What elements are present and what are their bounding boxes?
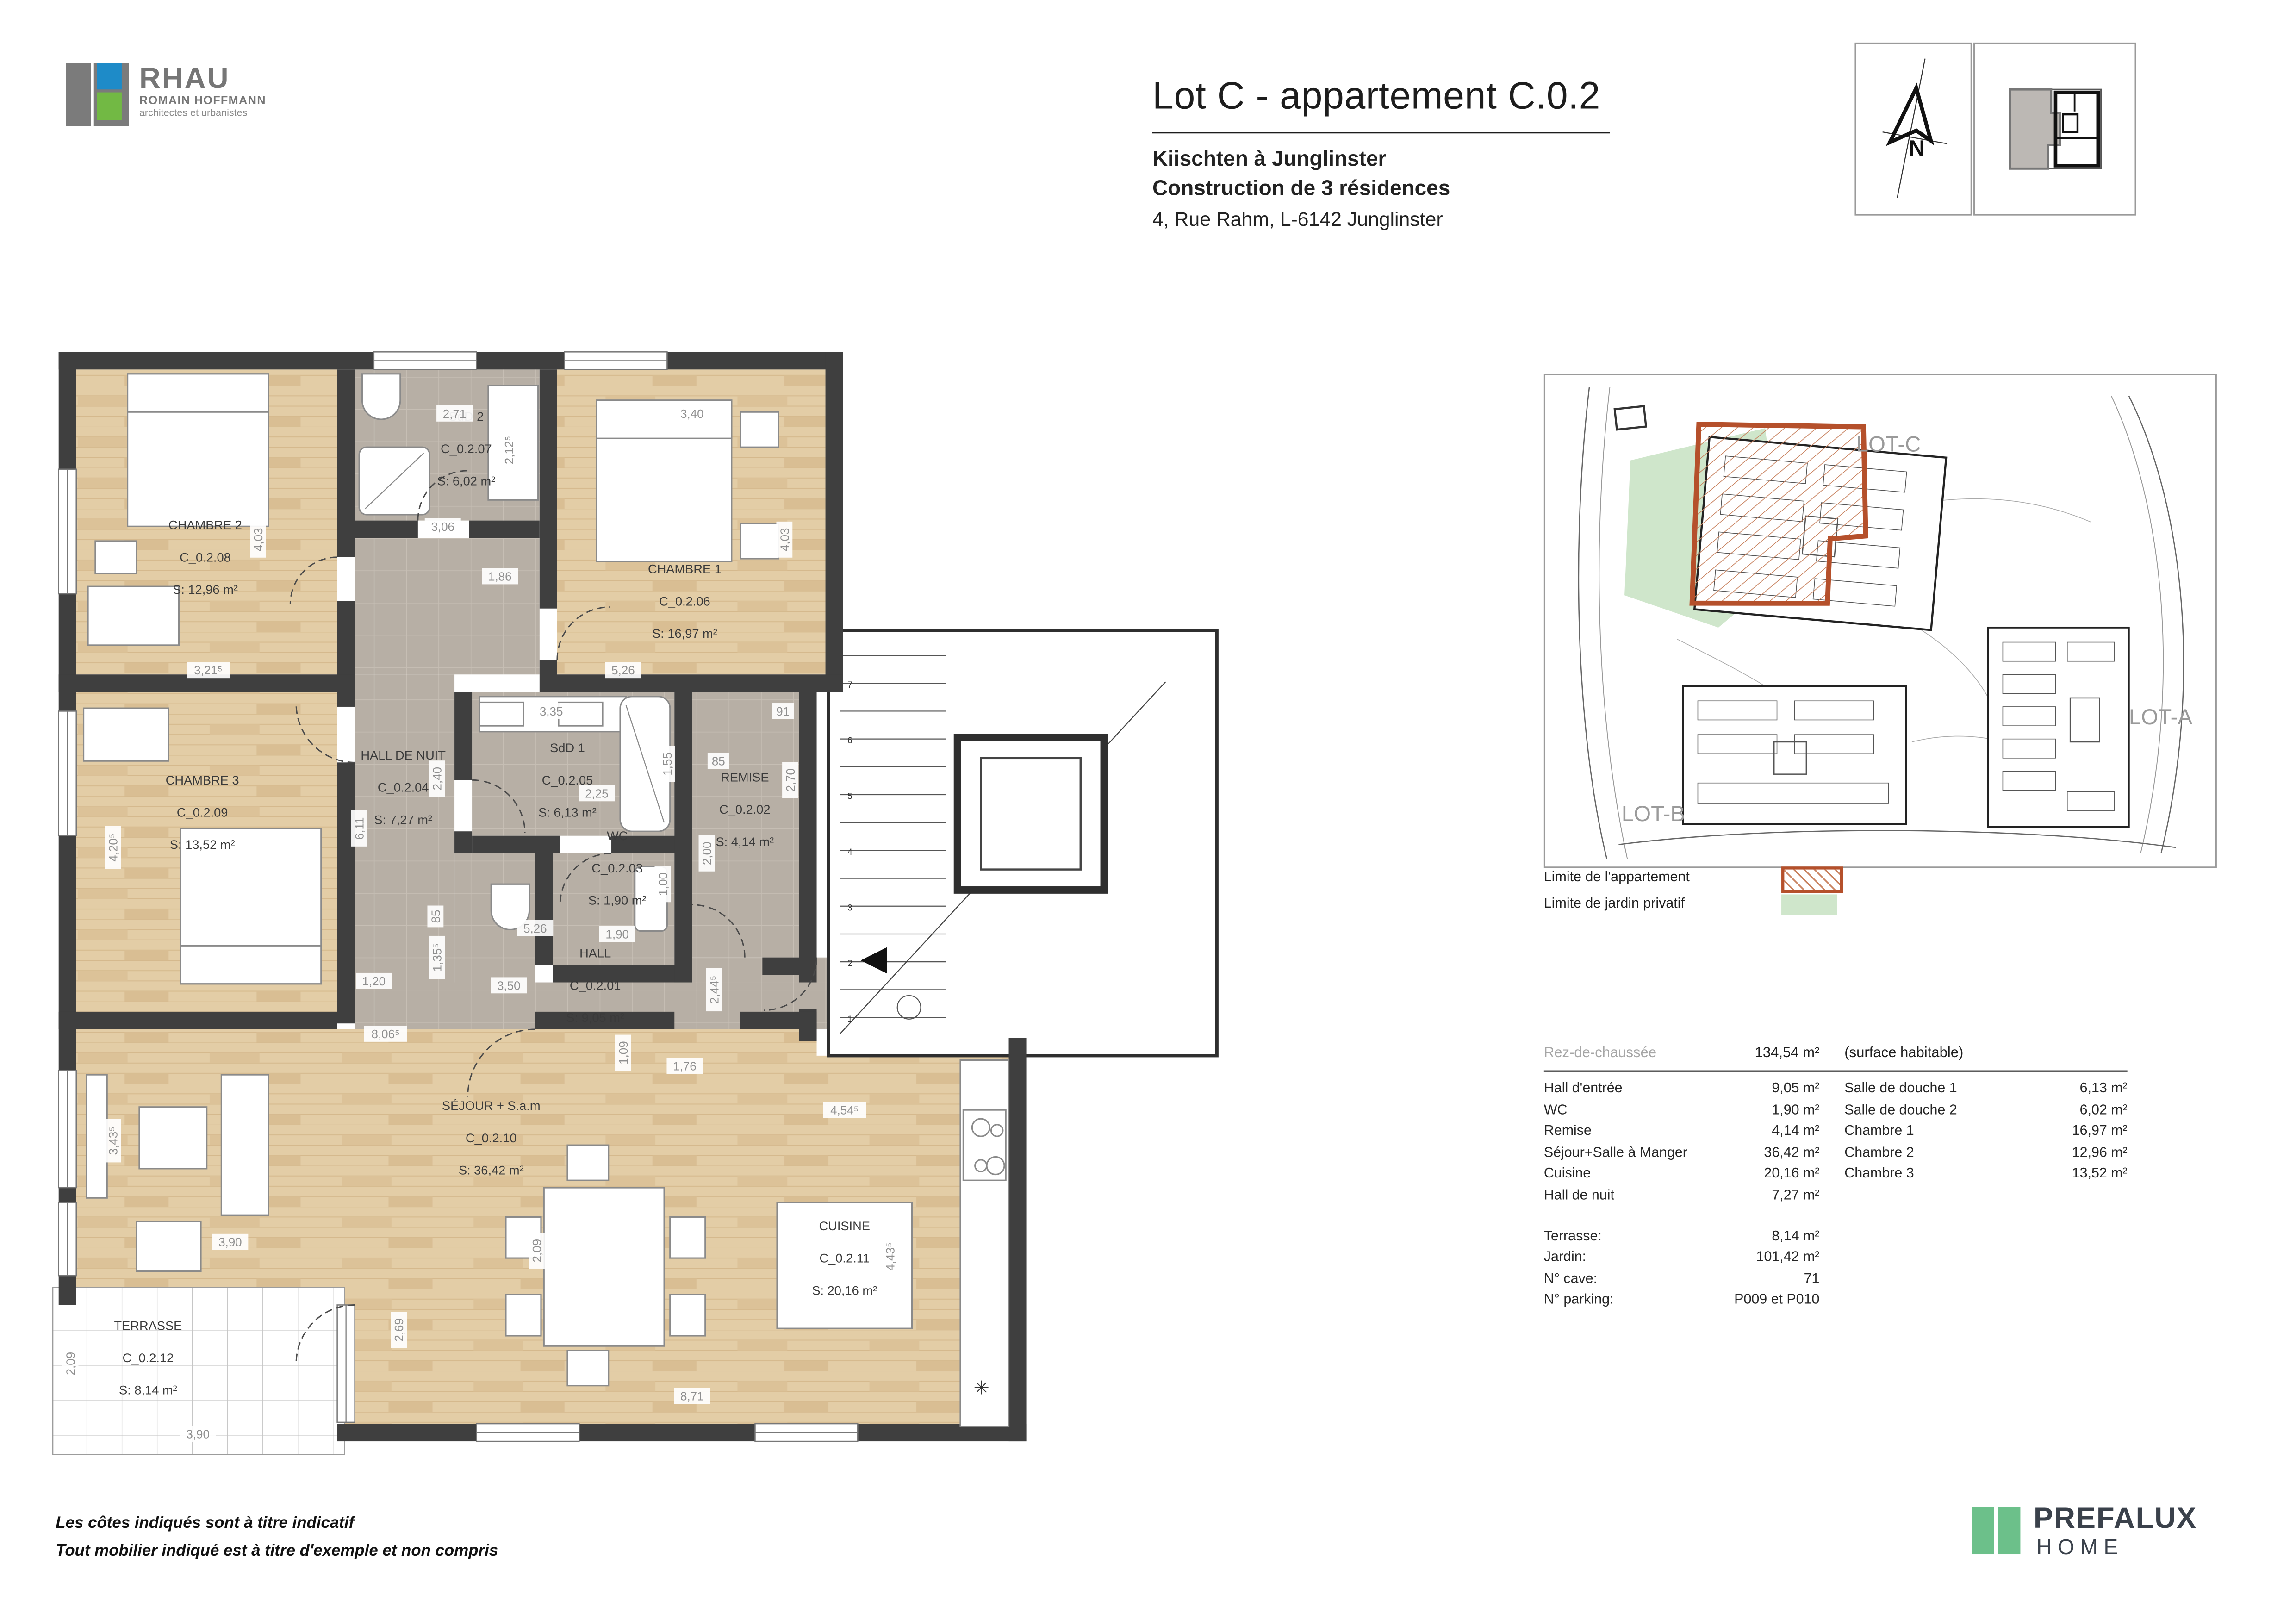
table-row: Salle de douche 16,13 m² [1844, 1079, 2127, 1101]
table-row: Séjour+Salle à Manger36,42 m² [1544, 1143, 1820, 1165]
floor-total-area: 134,54 m² [1685, 1044, 1819, 1063]
row-label: WC [1544, 1101, 1568, 1122]
row-label: N° parking: [1544, 1291, 1614, 1312]
dimension-label: 85 [427, 906, 443, 928]
key-plan-icon [1975, 44, 2134, 214]
north-arrow-icon: N [1856, 44, 1971, 214]
svg-text:6,11: 6,11 [353, 817, 367, 840]
svg-text:2,40: 2,40 [430, 767, 444, 791]
kitchen-sink-icon: ✳ [974, 1377, 990, 1399]
row-value: 13,52 m² [2072, 1165, 2128, 1186]
dimension-label: 5,26 [605, 662, 641, 678]
row-label: Hall d'entrée [1544, 1079, 1623, 1101]
svg-text:C_0.2.11: C_0.2.11 [819, 1251, 870, 1265]
key-plan-box [1973, 43, 2136, 216]
row-value: 9,05 m² [1772, 1079, 1819, 1101]
table-row: Jardin:101,42 m² [1544, 1248, 1820, 1269]
svg-text:C_0.2.06: C_0.2.06 [659, 594, 710, 608]
svg-text:N: N [1909, 136, 1925, 161]
row-value: 8,14 m² [1772, 1227, 1819, 1248]
dimension-label: 2,00 [699, 835, 715, 872]
svg-text:C_0.2.12: C_0.2.12 [123, 1351, 174, 1365]
dimension-label: 1,35⁵ [429, 936, 445, 979]
dimension-label: 1,55 [659, 746, 675, 782]
floor-label: Rez-de-chaussée [1544, 1044, 1685, 1063]
legend-garden-swatch [1781, 894, 1837, 915]
svg-text:1,76: 1,76 [673, 1059, 697, 1073]
svg-text:2,70: 2,70 [784, 768, 797, 792]
svg-text:C_0.2.07: C_0.2.07 [441, 442, 492, 456]
svg-text:4,43⁵: 4,43⁵ [883, 1242, 897, 1270]
dimension-label: 3,35 [533, 703, 569, 719]
svg-text:C_0.2.09: C_0.2.09 [177, 805, 228, 820]
row-label: Salle de douche 1 [1844, 1079, 1957, 1101]
svg-text:3,40: 3,40 [680, 407, 704, 421]
row-value: 101,42 m² [1756, 1248, 1820, 1269]
room-label: TERRASSEC_0.2.12S: 8,14 m² [114, 1318, 182, 1397]
stair-number: 3 [847, 903, 852, 913]
table-row: Salle de douche 26,02 m² [1844, 1101, 2127, 1122]
svg-text:4,03: 4,03 [778, 528, 791, 552]
svg-text:1,55: 1,55 [660, 752, 674, 776]
svg-text:1,86: 1,86 [488, 570, 512, 584]
row-label: N° cave: [1544, 1270, 1597, 1291]
table-row: Remise4,14 m² [1544, 1122, 1820, 1143]
floor-plan: 1234567✳CHAMBRE 2C_0.2.08S: 12,96 m²SdD … [51, 344, 1224, 1495]
site-label-lot-a: LOT-A [2129, 705, 2193, 729]
svg-text:C_0.2.04: C_0.2.04 [378, 780, 429, 795]
footer-note-2: Tout mobilier indiqué est à titre d'exem… [56, 1538, 498, 1566]
room-label: CUISINEC_0.2.11S: 20,16 m² [812, 1219, 877, 1297]
svg-text:REMISE: REMISE [721, 770, 769, 785]
svg-text:C_0.2.08: C_0.2.08 [180, 550, 231, 564]
dimension-label: 2,09 [529, 1233, 545, 1269]
svg-text:HALL DE NUIT: HALL DE NUIT [361, 748, 446, 762]
table-row: N° cave:71 [1544, 1270, 1820, 1291]
dimension-label: 4,43⁵ [882, 1235, 898, 1278]
row-value: 6,13 m² [2080, 1079, 2128, 1101]
dimension-label: 1,76 [666, 1058, 703, 1074]
dimension-label: 3,21⁵ [187, 662, 230, 678]
dimension-label: 3,40 [674, 405, 710, 422]
svg-text:3,43⁵: 3,43⁵ [106, 1127, 120, 1155]
dimension-label: 2,12⁵ [501, 429, 517, 472]
rhau-logo-name: RHAU [139, 64, 266, 93]
svg-text:85: 85 [429, 910, 442, 923]
table-row: Hall d'entrée9,05 m² [1544, 1079, 1820, 1101]
site-legend: Limite de l'appartement Limite de jardin… [1544, 866, 1925, 925]
dimension-label: 3,50 [491, 977, 527, 993]
areas-column-left: Hall d'entrée9,05 m²WC1,90 m²Remise4,14 … [1544, 1079, 1820, 1208]
svg-text:HALL: HALL [579, 946, 611, 960]
svg-text:C_0.2.01: C_0.2.01 [570, 978, 621, 992]
title-block: Lot C - appartement C.0.2 Kiischten à Ju… [1152, 73, 1783, 230]
prefalux-logo-square-1 [1972, 1507, 1994, 1554]
row-value: 36,42 m² [1764, 1143, 1819, 1165]
dimension-label: 1,00 [654, 866, 671, 902]
dimension-label: 1,90 [599, 926, 635, 942]
row-label: Jardin: [1544, 1248, 1586, 1269]
svg-text:2,09: 2,09 [64, 1352, 78, 1376]
dimension-label: 1,20 [356, 973, 392, 989]
dimension-label: 4,54⁵ [823, 1102, 866, 1118]
row-value: 7,27 m² [1772, 1186, 1819, 1208]
svg-text:S: 12,96 m²: S: 12,96 m² [173, 582, 238, 597]
row-label: Chambre 1 [1844, 1122, 1914, 1143]
svg-text:1,20: 1,20 [362, 974, 386, 988]
svg-text:5,26: 5,26 [611, 663, 635, 677]
svg-text:1,90: 1,90 [605, 927, 629, 941]
legend-apartment-row: Limite de l'appartement [1544, 866, 1690, 890]
row-label: Chambre 3 [1844, 1165, 1914, 1186]
table-row: Chambre 313,52 m² [1844, 1165, 2127, 1186]
site-road-left [1579, 387, 1607, 859]
rhau-logo-blue-square [97, 63, 122, 89]
svg-text:S: 4,14 m²: S: 4,14 m² [716, 835, 774, 849]
svg-text:C_0.2.05: C_0.2.05 [542, 773, 593, 787]
svg-text:CHAMBRE 2: CHAMBRE 2 [168, 518, 242, 532]
row-label: Hall de nuit [1544, 1186, 1614, 1208]
dimension-label: 91 [772, 703, 794, 719]
plan-sheet: RHAU ROMAIN HOFFMANN architectes et urba… [0, 0, 2296, 1613]
project-subtitle: Construction de 3 résidences [1152, 177, 1783, 201]
dimension-label: 2,71 [436, 405, 473, 422]
svg-text:2,44⁵: 2,44⁵ [707, 976, 721, 1004]
site-road-bottom [1618, 830, 2176, 847]
dimension-label: 5,26 [517, 920, 553, 936]
svg-text:CHAMBRE 1: CHAMBRE 1 [648, 562, 722, 576]
svg-text:3,21⁵: 3,21⁵ [194, 663, 222, 677]
table-row: Hall de nuit7,27 m² [1544, 1186, 1820, 1208]
dimension-label: 6,11 [351, 810, 367, 847]
svg-text:S: 20,16 m²: S: 20,16 m² [812, 1283, 877, 1297]
dimension-label: 2,09 [62, 1345, 79, 1382]
svg-text:3,06: 3,06 [431, 520, 454, 534]
site-building-lot-a [1988, 628, 2129, 827]
row-value: 20,16 m² [1764, 1165, 1819, 1186]
row-value: 1,90 m² [1772, 1101, 1819, 1122]
table-row: WC1,90 m² [1544, 1101, 1820, 1122]
site-plan: LOT-C LOT-A LOT-B [1544, 374, 2217, 868]
svg-text:2,25: 2,25 [585, 786, 609, 800]
dimension-label: 3,90 [180, 1426, 216, 1442]
north-arrow-box: N [1854, 43, 1972, 216]
dimension-label: 8,71 [674, 1388, 710, 1404]
table-row: Cuisine20,16 m² [1544, 1165, 1820, 1186]
dimension-label: 2,70 [782, 762, 798, 798]
legend-garden-label: Limite de jardin privatif [1544, 896, 1685, 912]
title-rule [1152, 132, 1610, 133]
floor-note: (surface habitable) [1844, 1044, 1963, 1063]
svg-text:S: 8,14 m²: S: 8,14 m² [119, 1383, 177, 1397]
row-value: 12,96 m² [2072, 1143, 2128, 1165]
rhau-logo-line1: ROMAIN HOFFMANN [139, 94, 266, 109]
areas-table-header: Rez-de-chaussée 134,54 m² (surface habit… [1544, 1044, 2130, 1063]
svg-text:TERRASSE: TERRASSE [114, 1318, 182, 1333]
dimension-label: 85 [708, 753, 729, 769]
project-name: Kiischten à Junglinster [1152, 148, 1783, 172]
stair-number: 7 [847, 680, 852, 690]
areas-table: Rez-de-chaussée 134,54 m² (surface habit… [1544, 1044, 2130, 1313]
svg-text:CHAMBRE 3: CHAMBRE 3 [166, 773, 239, 787]
svg-text:S: 9,05 m²: S: 9,05 m² [566, 1010, 624, 1025]
svg-text:2,71: 2,71 [443, 407, 467, 421]
dimension-label: 2,44⁵ [706, 968, 722, 1011]
svg-text:85: 85 [712, 754, 725, 768]
dimension-label: 4,03 [250, 522, 266, 558]
stair-number: 1 [847, 1015, 852, 1024]
svg-text:2,69: 2,69 [392, 1318, 406, 1342]
dimension-label: 2,25 [579, 785, 615, 801]
prefalux-sub: HOME [2036, 1537, 2123, 1560]
svg-text:S: 36,42 m²: S: 36,42 m² [459, 1163, 524, 1177]
dimension-label: 4,20⁵ [105, 826, 121, 869]
table-row: Terrasse:8,14 m² [1544, 1227, 1820, 1248]
sheet-title: Lot C - appartement C.0.2 [1152, 73, 1783, 118]
svg-text:3,50: 3,50 [497, 978, 521, 992]
areas-extras: Terrasse:8,14 m²Jardin:101,42 m²N° cave:… [1544, 1227, 1820, 1312]
stair-number: 6 [847, 736, 852, 746]
svg-text:C_0.2.02: C_0.2.02 [719, 802, 771, 816]
rhau-logo-line2: architectes et urbanistes [139, 108, 266, 120]
row-label: Séjour+Salle à Manger [1544, 1143, 1687, 1165]
dimension-label: 2,40 [429, 760, 445, 797]
svg-text:CUISINE: CUISINE [819, 1219, 870, 1233]
table-row: N° parking:P009 et P010 [1544, 1291, 1820, 1312]
svg-text:S: 13,52 m²: S: 13,52 m² [170, 837, 235, 852]
row-label: Salle de douche 2 [1844, 1101, 1957, 1122]
row-label: Chambre 2 [1844, 1143, 1914, 1165]
row-value: P009 et P010 [1734, 1291, 1819, 1312]
site-label-lot-b: LOT-B [1622, 802, 1685, 826]
row-value: 16,97 m² [2072, 1122, 2128, 1143]
svg-text:4,54⁵: 4,54⁵ [830, 1103, 859, 1117]
footer-note-1: Les côtes indiqués sont à titre indicati… [56, 1510, 498, 1538]
svg-text:SdD 1: SdD 1 [550, 741, 585, 755]
table-row: Chambre 212,96 m² [1844, 1143, 2127, 1165]
dimension-label: 4,03 [776, 522, 792, 558]
row-value: 71 [1804, 1270, 1820, 1291]
stair-number: 5 [847, 792, 852, 802]
table-row: Chambre 116,97 m² [1844, 1122, 2127, 1143]
site-label-lot-c: LOT-C [1856, 432, 1921, 457]
dimension-label: 3,43⁵ [105, 1119, 121, 1162]
project-address: 4, Rue Rahm, L-6142 Junglinster [1152, 208, 1783, 230]
row-value: 6,02 m² [2080, 1101, 2128, 1122]
svg-text:1,35⁵: 1,35⁵ [430, 943, 444, 972]
dimension-label: 2,69 [391, 1312, 407, 1348]
svg-text:SÉJOUR + S.a.m: SÉJOUR + S.a.m [442, 1098, 541, 1113]
dimension-label: 1,86 [482, 568, 518, 585]
svg-text:3,35: 3,35 [540, 704, 563, 718]
svg-text:8,71: 8,71 [680, 1389, 704, 1403]
svg-text:2,12⁵: 2,12⁵ [502, 436, 516, 464]
svg-text:S: 6,02 m²: S: 6,02 m² [437, 474, 496, 488]
svg-text:3,90: 3,90 [186, 1427, 210, 1441]
legend-garden-row: Limite de jardin privatif [1544, 893, 1685, 916]
svg-text:C_0.2.03: C_0.2.03 [591, 861, 643, 875]
svg-text:8,06⁵: 8,06⁵ [372, 1027, 400, 1041]
legend-apartment-label: Limite de l'appartement [1544, 870, 1690, 886]
table-rule [1544, 1071, 2128, 1072]
svg-text:C_0.2.10: C_0.2.10 [466, 1131, 517, 1145]
row-label: Terrasse: [1544, 1227, 1602, 1248]
svg-text:91: 91 [776, 704, 790, 718]
row-value: 4,14 m² [1772, 1122, 1819, 1143]
svg-text:S: 1,90 m²: S: 1,90 m² [588, 893, 647, 908]
legend-apartment-swatch [1781, 866, 1843, 893]
svg-text:WC: WC [607, 828, 628, 843]
prefalux-name: PREFALUX [2034, 1503, 2197, 1537]
rhau-logo-icon [66, 63, 129, 126]
svg-text:S: 6,13 m²: S: 6,13 m² [538, 805, 597, 820]
site-building-lot-b [1683, 686, 1906, 824]
prefalux-logo-square-2 [1998, 1507, 2021, 1554]
footer-notes: Les côtes indiqués sont à titre indicati… [56, 1510, 498, 1566]
dimension-label: 1,09 [615, 1035, 631, 1071]
svg-text:3,90: 3,90 [218, 1235, 242, 1249]
svg-text:2,00: 2,00 [700, 841, 714, 865]
areas-column-right: Salle de douche 16,13 m²Salle de douche … [1844, 1079, 2127, 1208]
row-label: Cuisine [1544, 1165, 1591, 1186]
svg-text:S: 7,27 m²: S: 7,27 m² [374, 812, 432, 827]
rhau-logo: RHAU ROMAIN HOFFMANN architectes et urba… [66, 62, 360, 149]
dimension-label: 3,06 [425, 518, 461, 535]
svg-text:1,00: 1,00 [656, 872, 670, 896]
rhau-logo-green-square [97, 93, 122, 120]
svg-text:4,20⁵: 4,20⁵ [106, 833, 120, 861]
svg-text:1,09: 1,09 [616, 1041, 630, 1065]
stair-number: 4 [847, 847, 852, 857]
dimension-label: 3,90 [212, 1234, 248, 1250]
svg-text:4,03: 4,03 [251, 528, 265, 552]
row-label: Remise [1544, 1122, 1592, 1143]
svg-text:5,26: 5,26 [523, 922, 547, 935]
svg-text:2,09: 2,09 [530, 1239, 544, 1263]
svg-text:S: 16,97 m²: S: 16,97 m² [652, 626, 717, 641]
dimension-label: 8,06⁵ [364, 1026, 407, 1042]
stair-number: 2 [847, 959, 852, 969]
room-label: REMISEC_0.2.02S: 4,14 m² [716, 770, 774, 849]
prefalux-logo: PREFALUX HOME [1972, 1506, 2280, 1588]
